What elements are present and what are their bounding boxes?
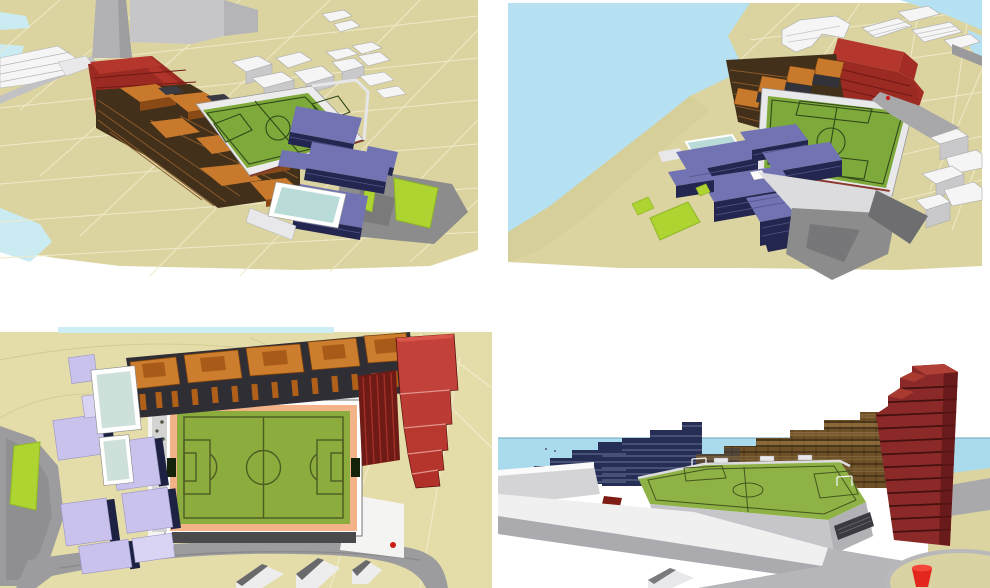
- panel-aerial-water: [500, 0, 990, 292]
- panel-aerial-west: [0, 0, 490, 292]
- stand-roof: [172, 532, 356, 543]
- panel-eye-level: [498, 298, 990, 588]
- roundabout: [884, 549, 990, 588]
- goal-left: [167, 458, 176, 477]
- red-marker: [886, 96, 890, 100]
- goal-right: [351, 458, 360, 477]
- red-marker: [390, 542, 396, 548]
- red-tower: [868, 364, 964, 546]
- lawn: [10, 442, 40, 510]
- panel-site-plan: [0, 298, 492, 588]
- render-montage: [0, 0, 990, 588]
- grey-megablock: [130, 0, 224, 44]
- water-strip: [58, 327, 334, 333]
